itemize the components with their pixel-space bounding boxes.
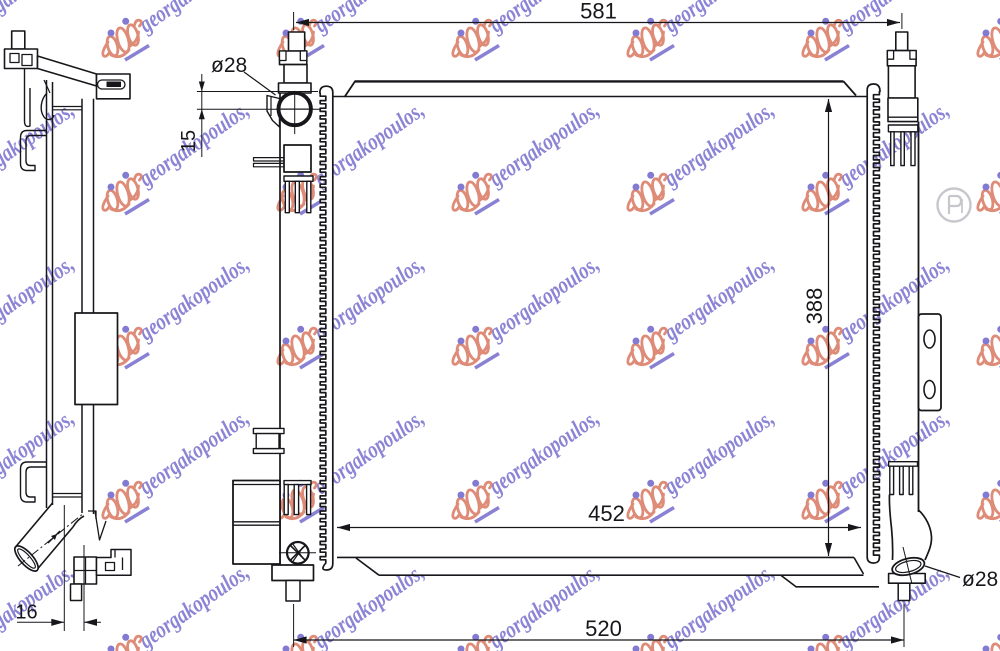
svg-text:388: 388 (802, 288, 827, 325)
svg-text:16: 16 (15, 602, 37, 624)
svg-text:ø28: ø28 (211, 54, 247, 77)
svg-text:ø28: ø28 (962, 568, 998, 591)
svg-text:15: 15 (178, 130, 200, 152)
svg-text:581: 581 (580, 0, 617, 24)
svg-text:520: 520 (585, 616, 622, 641)
svg-text:452: 452 (588, 501, 625, 526)
